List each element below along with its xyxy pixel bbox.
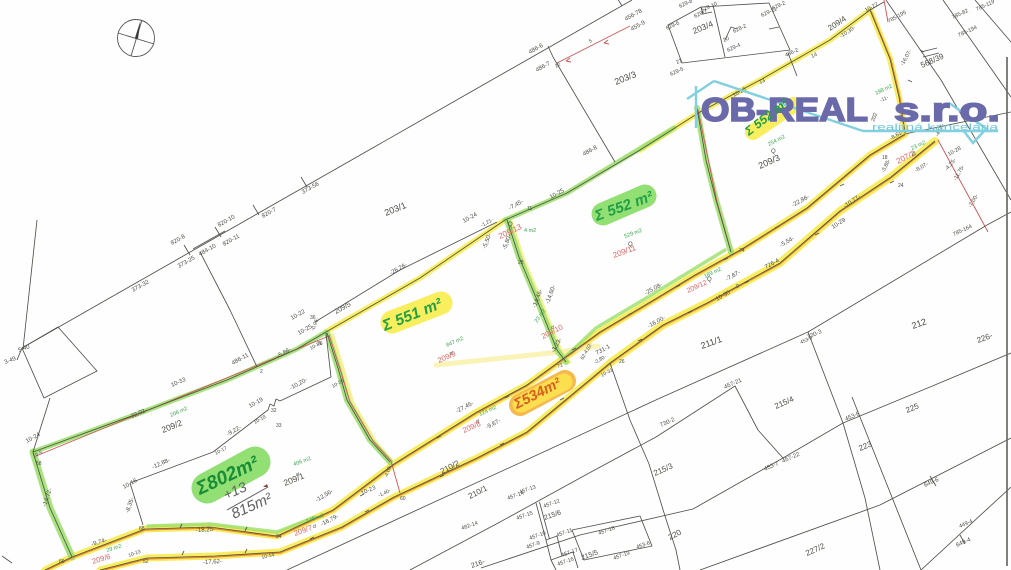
svg-text:58: 58	[36, 461, 42, 467]
svg-text:18: 18	[882, 155, 888, 161]
svg-text:11: 11	[527, 206, 532, 212]
svg-text:28: 28	[518, 260, 524, 266]
svg-text:-17,62-: -17,62-	[203, 559, 222, 566]
svg-text:60: 60	[400, 496, 406, 502]
svg-text:4 m2: 4 m2	[524, 228, 536, 234]
svg-text:66: 66	[59, 559, 65, 565]
svg-text:32: 32	[271, 408, 277, 414]
svg-text:2: 2	[260, 369, 263, 375]
svg-text:26: 26	[619, 359, 625, 365]
svg-text:9: 9	[736, 284, 739, 290]
svg-text:64: 64	[276, 534, 282, 540]
svg-text:68: 68	[139, 526, 145, 532]
svg-text:d: d	[313, 524, 316, 530]
svg-text:24: 24	[898, 183, 904, 189]
svg-text:realitná kancelária: realitná kancelária	[872, 122, 999, 133]
svg-text:36: 36	[317, 341, 323, 347]
svg-text:33: 33	[276, 423, 282, 429]
svg-text:74: 74	[739, 248, 745, 254]
svg-text:52: 52	[143, 559, 149, 565]
svg-text:-18,25-: -18,25-	[196, 527, 215, 534]
